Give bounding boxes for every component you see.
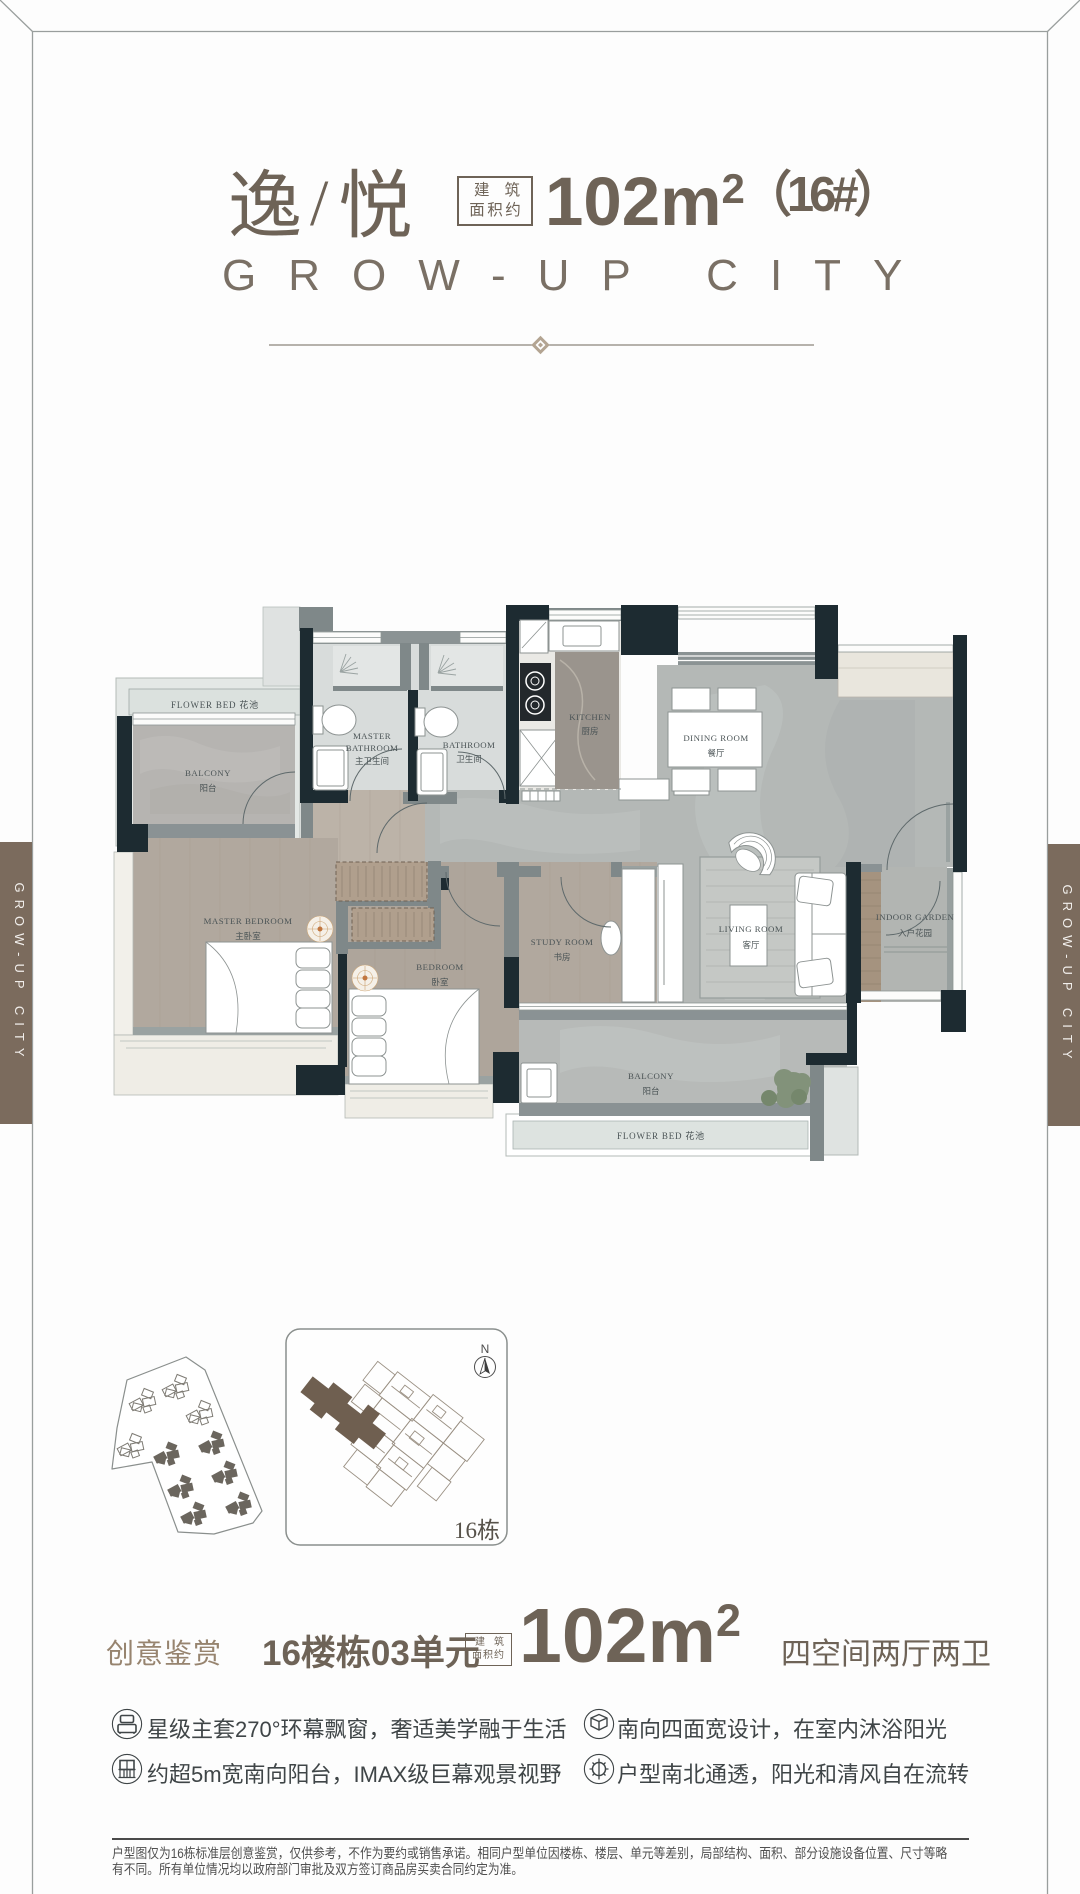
svg-text:卧室: 卧室 bbox=[431, 977, 449, 987]
svg-text:BALCONY: BALCONY bbox=[185, 768, 231, 778]
svg-text:入户花园: 入户花园 bbox=[898, 928, 932, 938]
svg-text:书房: 书房 bbox=[553, 952, 570, 962]
svg-text:KITCHEN: KITCHEN bbox=[569, 712, 611, 722]
svg-text:MASTER BEDROOM: MASTER BEDROOM bbox=[204, 916, 293, 926]
svg-text:DINING ROOM: DINING ROOM bbox=[683, 733, 748, 743]
svg-text:BATHROOM: BATHROOM bbox=[443, 740, 496, 750]
svg-text:厨房: 厨房 bbox=[581, 726, 598, 736]
svg-text:阳台: 阳台 bbox=[642, 1086, 659, 1096]
svg-text:主卫生间: 主卫生间 bbox=[355, 756, 389, 766]
svg-text:LIVING ROOM: LIVING ROOM bbox=[719, 924, 783, 934]
svg-text:MASTER: MASTER bbox=[353, 731, 391, 741]
svg-text:STUDY ROOM: STUDY ROOM bbox=[531, 937, 594, 947]
svg-text:阳台: 阳台 bbox=[199, 783, 216, 793]
svg-text:16栋: 16栋 bbox=[454, 1518, 500, 1543]
svg-text:BATHROOM: BATHROOM bbox=[346, 743, 399, 753]
svg-text:卫生间: 卫生间 bbox=[456, 754, 482, 764]
svg-text:FLOWER BED 花池: FLOWER BED 花池 bbox=[617, 1130, 705, 1141]
svg-text:FLOWER BED 花池: FLOWER BED 花池 bbox=[171, 699, 259, 710]
svg-text:INDOOR GARDEN: INDOOR GARDEN bbox=[876, 912, 955, 922]
svg-text:N: N bbox=[481, 1342, 490, 1356]
svg-text:BALCONY: BALCONY bbox=[628, 1071, 674, 1081]
svg-text:餐厅: 餐厅 bbox=[707, 748, 725, 758]
svg-text:客厅: 客厅 bbox=[742, 940, 760, 950]
svg-text:主卧室: 主卧室 bbox=[235, 931, 261, 941]
svg-text:BEDROOM: BEDROOM bbox=[416, 962, 464, 972]
